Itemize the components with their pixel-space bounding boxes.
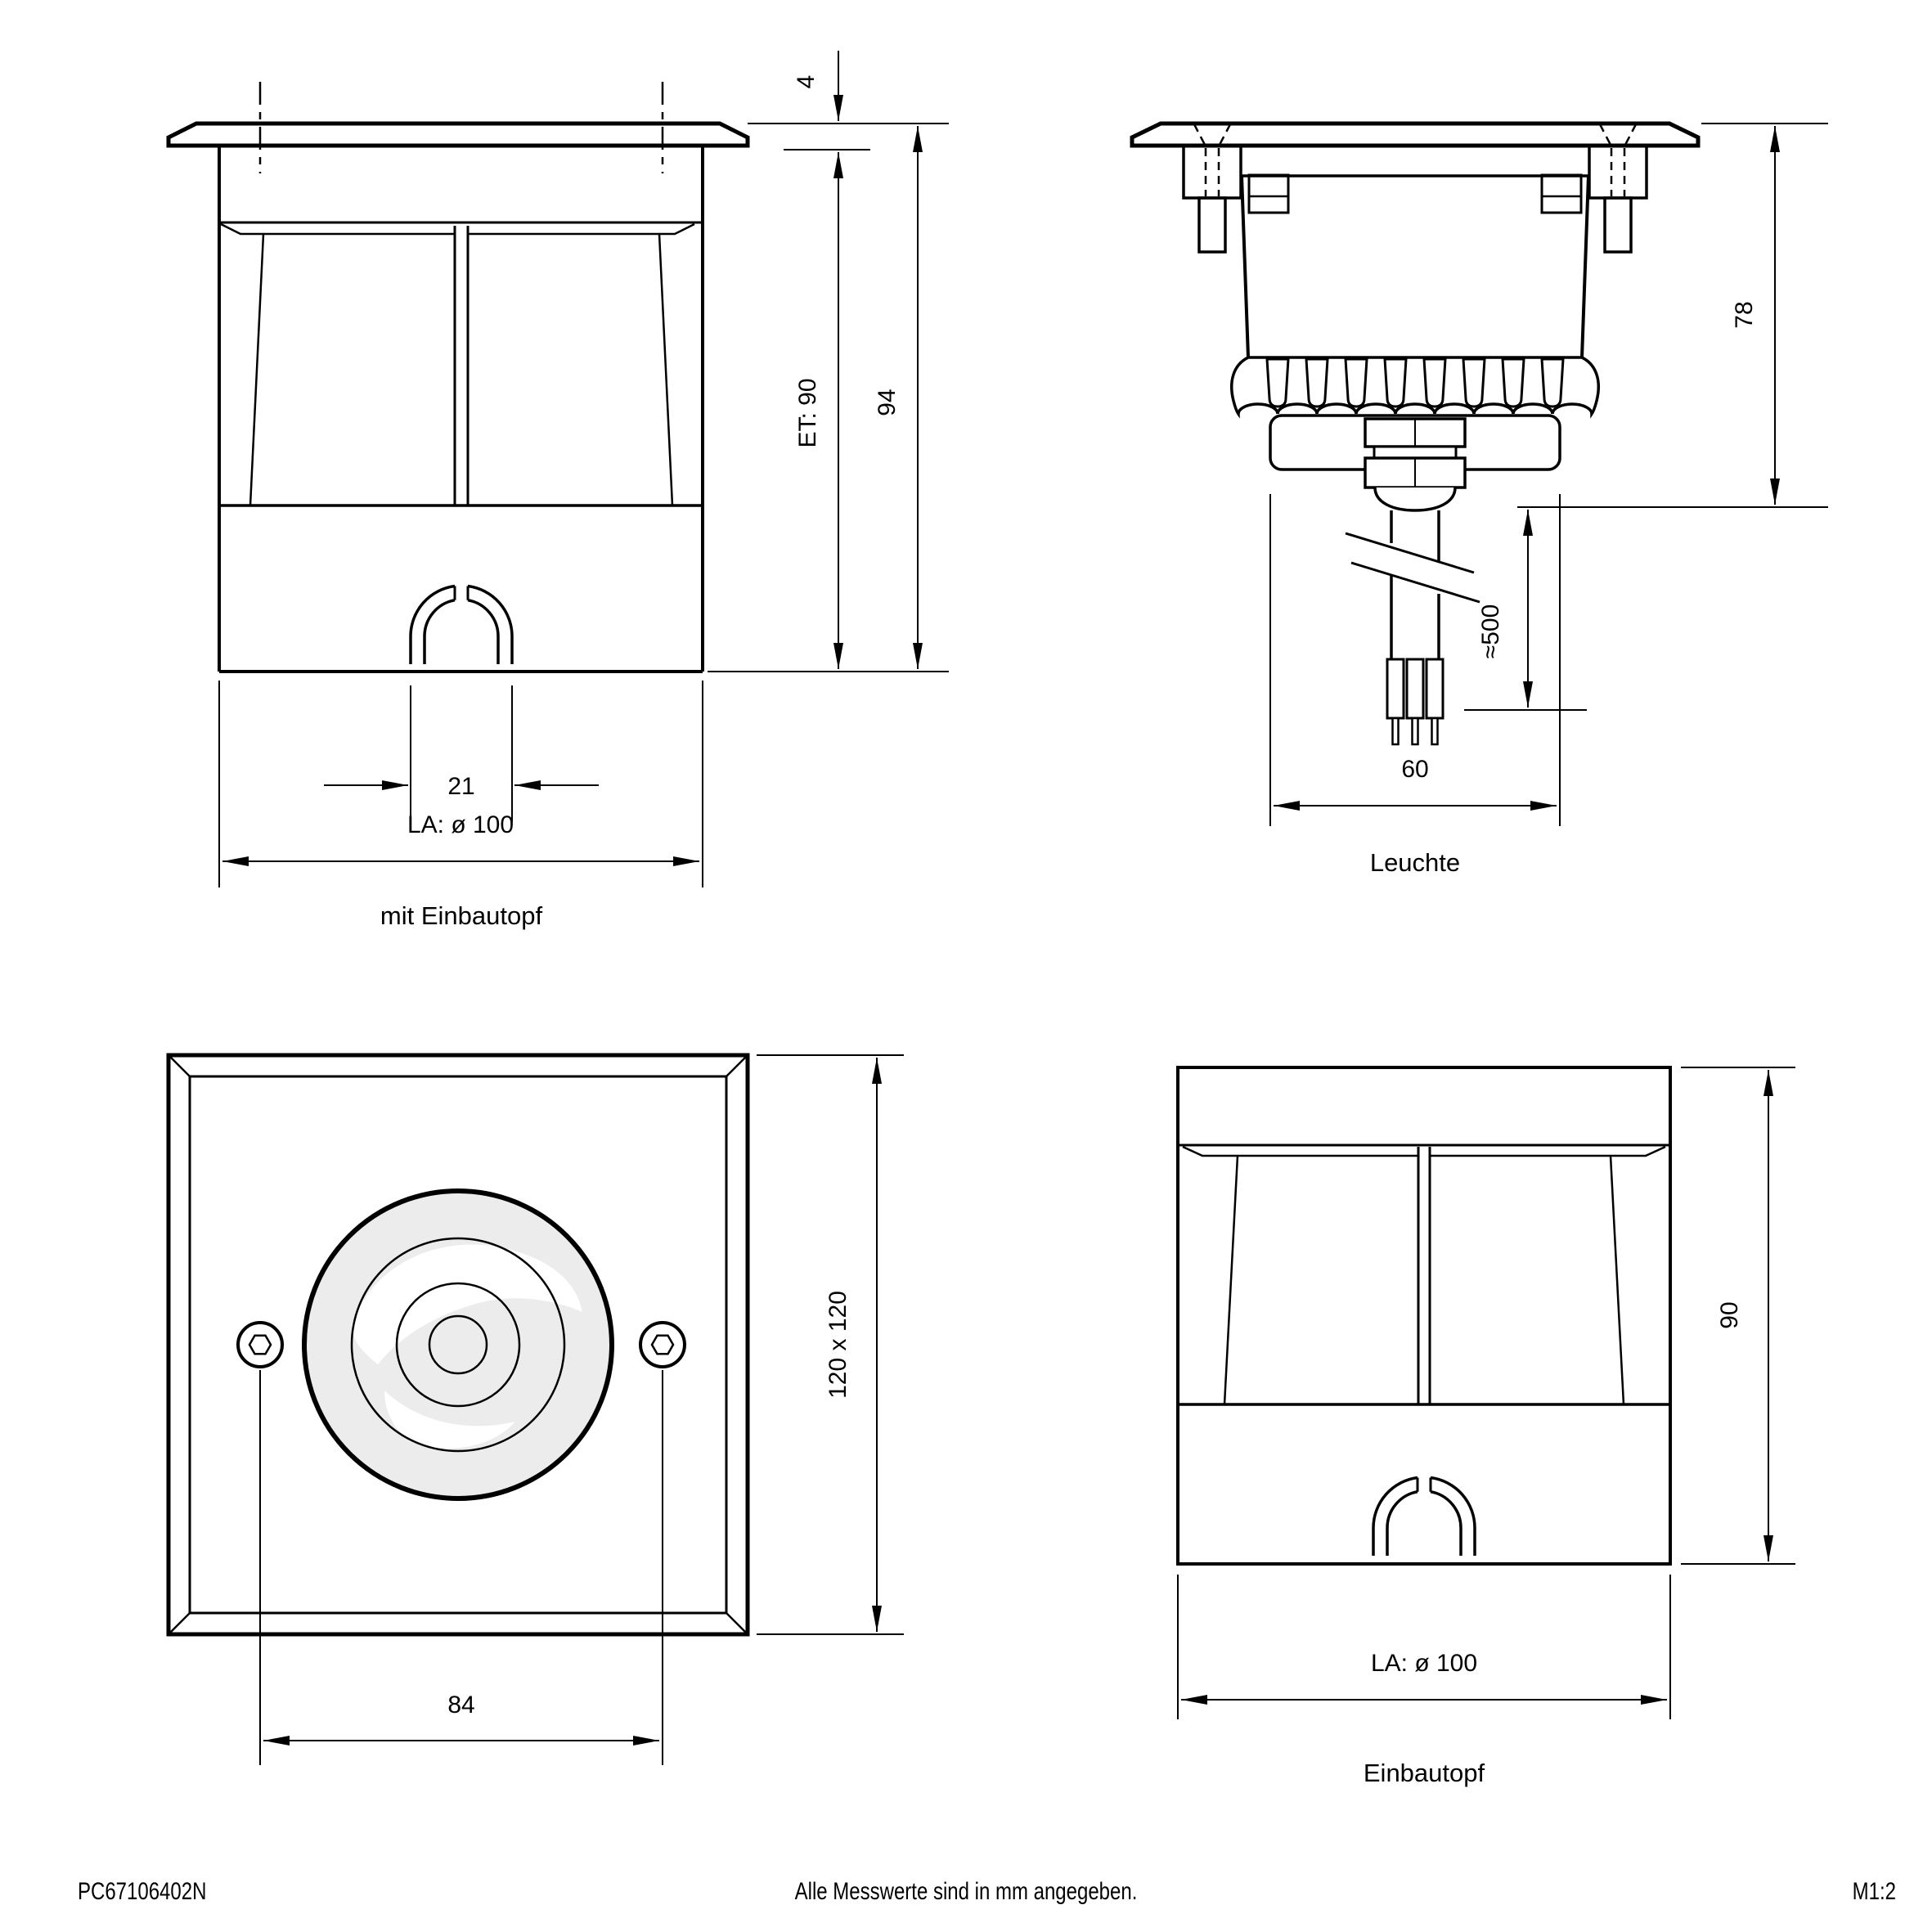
dim-label-screw-spacing: 84 — [447, 1692, 474, 1719]
fixing-screw-left — [238, 1323, 282, 1367]
dim-label-cable-length: ≈500 — [1477, 604, 1504, 659]
luminaire-flange — [1132, 124, 1698, 146]
technical-drawing-sheet: 4 ET: 90 94 21 LA: ø 100 mit Einbautopf — [0, 0, 1932, 1932]
dim-label-luminaire-height: 78 — [1731, 301, 1758, 328]
dim-cable-length: ≈500 — [1464, 510, 1587, 710]
reflector-slant — [1224, 1156, 1624, 1404]
dim-label-recess-depth: ET: 90 — [794, 378, 821, 447]
footer-doc-number: PC67106402N — [78, 1876, 206, 1904]
countersunk-screw-icon — [1194, 124, 1636, 196]
flange-profile — [168, 124, 748, 146]
screw-shaft-right — [1605, 198, 1631, 252]
dim-label-cutout-diameter: LA: ø 100 — [407, 811, 514, 838]
cable-entry-arch — [1373, 1478, 1475, 1557]
caption-side-with-pot: mit Einbautopf — [380, 901, 543, 930]
footer-scale: M1:2 — [1853, 1876, 1896, 1904]
dim-flange-height: 4 — [748, 51, 949, 150]
caption-luminaire: Leuchte — [1370, 848, 1460, 877]
heatsink — [1232, 357, 1599, 414]
footer-note: Alle Messwerte sind in mm angegeben. — [795, 1876, 1138, 1904]
caption-pot: Einbautopf — [1364, 1759, 1485, 1787]
view-front-face: 84 120 x 120 — [168, 1055, 904, 1765]
footer: PC67106402N Alle Messwerte sind in mm an… — [78, 1876, 1896, 1904]
screw-housing-right — [1589, 146, 1647, 198]
view-pot: 90 LA: ø 100 Einbautopf — [1178, 1067, 1795, 1787]
dim-luminaire-height: 78 — [1517, 124, 1828, 507]
dim-cable-entry-width: 21 — [324, 685, 599, 822]
dim-label-body-diameter: 60 — [1401, 756, 1428, 783]
dim-label-cutout-diameter: LA: ø 100 — [1371, 1650, 1477, 1677]
screw-housing-left — [1184, 146, 1241, 198]
reflector-divider — [1418, 1147, 1430, 1404]
dim-label-plate-size: 120 x 120 — [824, 1291, 851, 1399]
lens — [304, 1191, 612, 1498]
dim-label-flange-height: 4 — [793, 75, 820, 89]
cable-entry-arch — [411, 586, 512, 665]
pot-outer-wall — [219, 146, 703, 672]
dim-cutout-diameter: LA: ø 100 — [1178, 1575, 1670, 1719]
dim-total-height: 94 — [708, 126, 949, 672]
view-luminaire: 78 ≈500 60 Leuchte — [1132, 124, 1828, 877]
body-wall — [1242, 176, 1588, 357]
dim-plate-size: 120 x 120 — [757, 1055, 904, 1634]
dim-recess-depth: ET: 90 — [794, 152, 838, 669]
fixing-screw-right — [640, 1323, 685, 1367]
cable — [1346, 510, 1480, 659]
view-side-with-pot: 4 ET: 90 94 21 LA: ø 100 mit Einbautopf — [168, 51, 949, 930]
pot-outline — [1178, 1067, 1670, 1564]
dim-label-pot-height: 90 — [1716, 1301, 1743, 1328]
dim-label-total-height: 94 — [874, 389, 901, 416]
screw-shaft-left — [1199, 198, 1225, 252]
clamp-bracket-right — [1542, 175, 1581, 213]
dim-pot-height: 90 — [1681, 1067, 1795, 1564]
reflector-divider — [455, 226, 468, 505]
reflector-top-edge — [1183, 1147, 1665, 1156]
cable-gland — [1365, 419, 1465, 510]
reflector-slant — [250, 234, 672, 505]
cable-break-icon — [1346, 533, 1480, 602]
screw-centerline-icon — [260, 82, 663, 173]
reflector-top-edge — [221, 224, 694, 234]
wire-ends — [1387, 659, 1443, 744]
dim-label-cable-entry-width: 21 — [447, 773, 474, 800]
drawing-canvas: 4 ET: 90 94 21 LA: ø 100 mit Einbautopf — [0, 0, 1932, 1932]
clamp-bracket-left — [1249, 175, 1288, 213]
